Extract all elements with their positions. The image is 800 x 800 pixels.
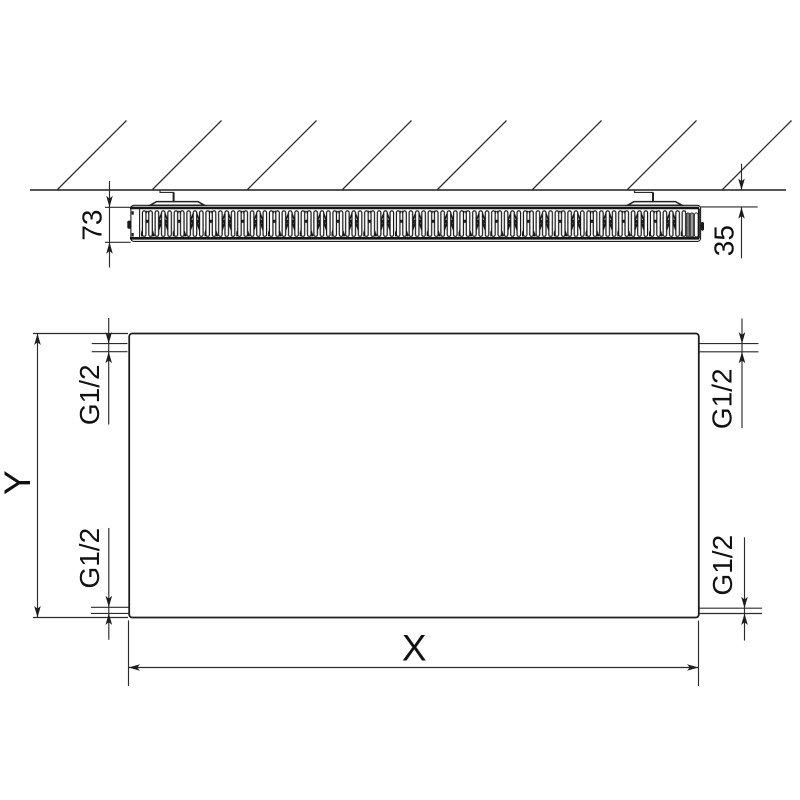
svg-text:Y: Y xyxy=(0,470,38,495)
svg-text:G1/2: G1/2 xyxy=(74,528,105,589)
svg-text:G1/2: G1/2 xyxy=(707,535,738,596)
svg-text:G1/2: G1/2 xyxy=(707,368,738,429)
svg-text:73: 73 xyxy=(76,210,107,241)
svg-text:G1/2: G1/2 xyxy=(74,364,105,425)
svg-text:35: 35 xyxy=(709,225,740,256)
svg-text:X: X xyxy=(402,628,427,669)
